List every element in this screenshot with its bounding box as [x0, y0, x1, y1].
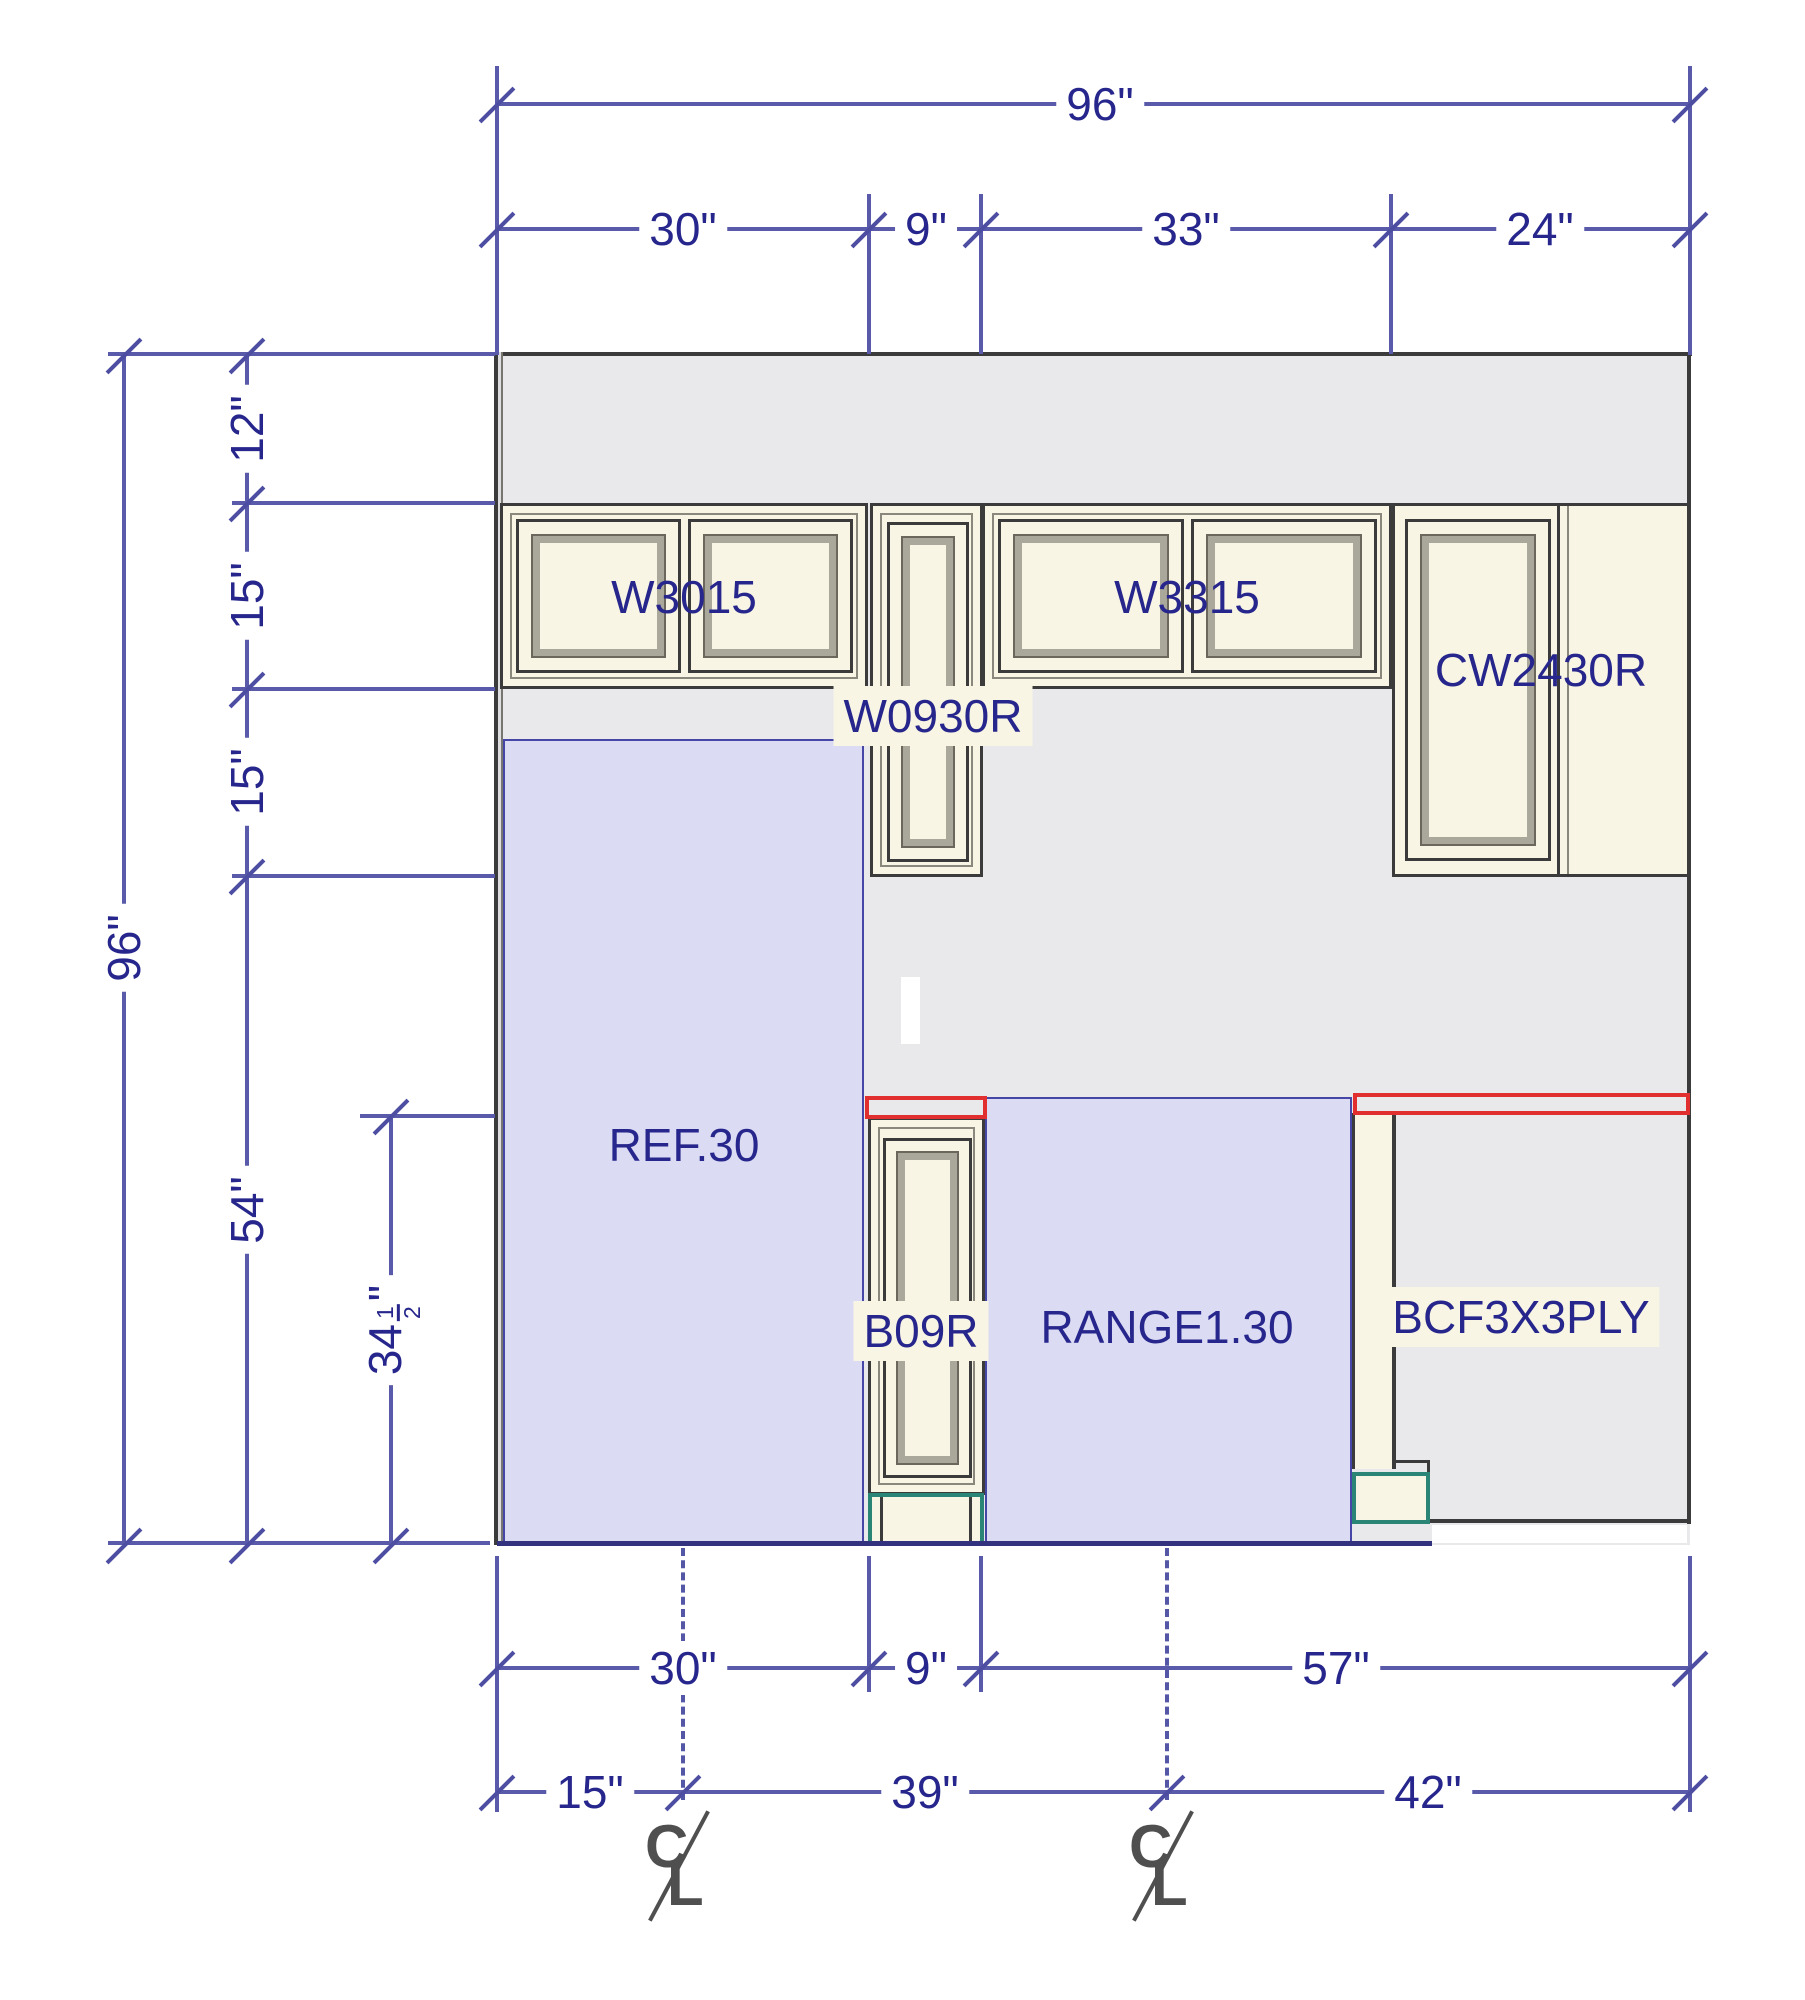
dim-counter-height: 3412"	[358, 1275, 424, 1385]
dim-bottom1-9: 9"	[895, 1641, 957, 1695]
counter-height-fraction: 12	[373, 1304, 424, 1321]
dim-top-33: 33"	[1142, 202, 1230, 256]
soffit-wall-band	[497, 355, 1690, 505]
label-refrigerator: REF.30	[609, 1118, 760, 1172]
wall-outlet	[901, 977, 920, 1044]
corner-floor-gap	[1432, 1525, 1687, 1543]
dim-left-54: 54"	[220, 1166, 274, 1254]
dim-bottom1-30: 30"	[639, 1641, 727, 1695]
dim-left-15a: 15"	[220, 552, 274, 640]
corner-floor-line	[1393, 1519, 1690, 1523]
label-range: RANGE1.30	[1040, 1300, 1293, 1354]
label-w3315: W3315	[1114, 570, 1260, 624]
dim-overall-width: 96"	[1056, 77, 1144, 131]
extension-line	[1389, 194, 1393, 354]
extension-line	[232, 501, 495, 505]
extension-line	[867, 194, 871, 354]
dim-bottom2-15: 15"	[546, 1765, 634, 1819]
centerline-symbol: C L	[1125, 1812, 1209, 1928]
dim-line-bottom-row2	[497, 1790, 1690, 1794]
extension-line	[495, 1556, 499, 1812]
dim-top-30: 30"	[639, 202, 727, 256]
label-bcf3x3ply: BCF3X3PLY	[1382, 1287, 1659, 1347]
counter-height-whole: 34	[359, 1324, 411, 1375]
fraction-denominator: 2	[400, 1306, 424, 1319]
counter-height-unit: "	[359, 1285, 411, 1301]
extension-line	[495, 66, 499, 355]
dim-top-24: 24"	[1496, 202, 1584, 256]
dim-bottom2-42: 42"	[1384, 1765, 1472, 1819]
label-b09r: B09R	[853, 1301, 988, 1361]
filler-step-line	[1394, 1460, 1430, 1463]
centerline-l: L	[1151, 1850, 1188, 1919]
extension-line	[108, 1541, 490, 1545]
label-w3015: W3015	[611, 570, 757, 624]
extension-line	[979, 194, 983, 354]
toe-kick-line	[969, 1497, 972, 1541]
extension-line	[1688, 66, 1692, 355]
extension-line	[1688, 1556, 1692, 1812]
extension-line	[232, 687, 495, 691]
extension-line	[360, 1114, 495, 1118]
dim-line-left-segments	[245, 355, 249, 1545]
wall-top-line	[494, 352, 1692, 356]
dim-bottom1-57: 57"	[1292, 1641, 1380, 1695]
toe-kick-line	[880, 1497, 883, 1541]
fraction-numerator: 1	[373, 1304, 400, 1321]
dim-left-15b: 15"	[220, 738, 274, 826]
centerline-range	[1165, 1548, 1169, 1800]
countertop-corner	[1353, 1093, 1690, 1115]
toe-kick-b09r	[868, 1493, 984, 1545]
label-cw2430r: CW2430R	[1435, 643, 1647, 697]
dim-overall-height: 96"	[97, 904, 151, 992]
centerline-l: L	[667, 1850, 704, 1919]
dim-top-9: 9"	[895, 202, 957, 256]
label-w0930r: W0930R	[834, 686, 1033, 746]
countertop-b09r	[865, 1096, 987, 1119]
dim-bottom2-39: 39"	[881, 1765, 969, 1819]
dim-left-12: 12"	[220, 385, 274, 473]
centerline-symbol: C L	[641, 1812, 725, 1928]
toe-kick-corner	[1352, 1472, 1430, 1524]
extension-line	[232, 874, 495, 878]
extension-line	[108, 352, 495, 356]
floor-line	[497, 1541, 1432, 1546]
kitchen-elevation-drawing: W3015 W3315 W0930R CW2430R REF.30 B09R R…	[0, 0, 1805, 2000]
